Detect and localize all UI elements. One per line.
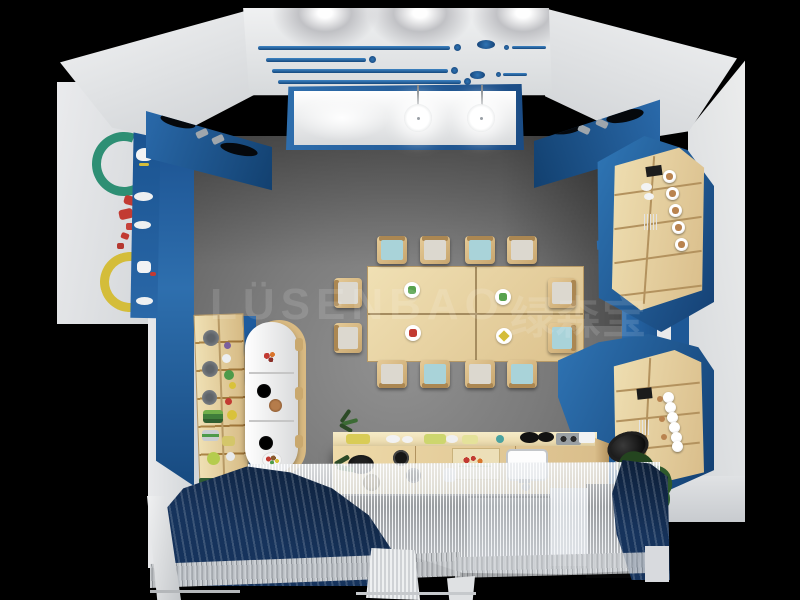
- jar-item: [224, 342, 231, 349]
- soffit-cutout: [219, 140, 258, 159]
- capsule-hinge: [295, 338, 303, 351]
- counter-plate: [402, 436, 413, 443]
- jar-item: [202, 390, 217, 405]
- shelf-accent: [150, 272, 156, 276]
- chair: [377, 236, 407, 264]
- counter-plate: [386, 435, 400, 443]
- chair: [465, 236, 495, 264]
- shelf-cone: [657, 396, 663, 402]
- chair: [420, 360, 450, 388]
- shelf-plate: [672, 221, 685, 234]
- counter-mat: [424, 434, 446, 444]
- ceiling-ellipse: [477, 40, 495, 49]
- capsule-hinge: [295, 387, 303, 400]
- shelf-dark-box: [636, 387, 652, 400]
- jar-item: [222, 436, 235, 446]
- ceiling-stripe-dot: [496, 72, 501, 77]
- pendant-light-center: [480, 117, 483, 120]
- counter-stove: [556, 433, 581, 445]
- counter-mat: [346, 434, 370, 444]
- soffit-glyph: [577, 124, 591, 135]
- shelf-plate: [663, 170, 676, 183]
- counter-teal-item: [496, 435, 504, 443]
- chair: [507, 360, 537, 388]
- shelf-plate: [134, 192, 153, 201]
- watermark-cjk: 绿森宝: [510, 282, 648, 346]
- counter-pot: [520, 432, 539, 443]
- watermark-latin: LÜSENBAO: [210, 280, 505, 330]
- curtain-tab: [447, 576, 475, 600]
- jar-item: [202, 361, 218, 377]
- capsule-knob-black: [259, 436, 273, 450]
- ceiling-stripe: [512, 46, 546, 49]
- jar-item: [207, 452, 220, 465]
- shelf-cone: [659, 416, 665, 422]
- pendant-light-center: [417, 117, 420, 120]
- jar-item: [222, 354, 231, 363]
- chair: [377, 360, 407, 388]
- jar-item: [202, 430, 219, 441]
- shelf-cone: [661, 434, 667, 440]
- capsule-decal-food: [262, 350, 278, 363]
- shelf-plate: [666, 187, 679, 200]
- ceiling-stripe-dot: [504, 45, 509, 50]
- shelf-accent: [139, 163, 149, 166]
- counter-mat: [462, 435, 478, 444]
- curtain-tab: [645, 546, 669, 582]
- ceiling-stripe: [266, 58, 366, 62]
- ceiling-stripe: [258, 46, 450, 50]
- red-wall-decor: [117, 243, 124, 249]
- shelf-bowl: [641, 183, 652, 191]
- sill-line: [150, 590, 240, 593]
- shelf-plate: [134, 221, 151, 229]
- chair: [420, 236, 450, 264]
- watermark: LÜSENBAO 绿森宝: [210, 280, 630, 332]
- shelf-plate: [672, 441, 683, 452]
- counter-plate: [446, 435, 458, 443]
- shelf-cup: [137, 261, 151, 273]
- soffit-glyph: [195, 128, 209, 139]
- lightbox-glow: [294, 95, 390, 141]
- counter-pot: [538, 432, 554, 442]
- capsule-decal-toppings: [265, 455, 279, 465]
- jar-item: [224, 370, 234, 380]
- capsule-hinge: [295, 435, 303, 448]
- jar-item: [203, 410, 223, 423]
- capsule-knob-brown: [269, 399, 282, 412]
- chair: [507, 236, 537, 264]
- chair: [465, 360, 495, 388]
- jar-item: [226, 452, 235, 461]
- ceiling-stripe-dot: [369, 56, 376, 63]
- capsule-knob-black: [257, 384, 271, 398]
- ceiling-stripe-dot: [464, 78, 471, 85]
- lightbox-panel: [294, 91, 516, 145]
- ceiling-stripe: [278, 80, 461, 84]
- jar-item: [227, 410, 237, 420]
- shelf-plate: [136, 297, 153, 305]
- counter-box: [579, 432, 595, 443]
- ceiling-stripe: [503, 73, 527, 76]
- shelf-plate: [675, 238, 688, 251]
- shelf-bowl: [644, 193, 654, 200]
- jar-item: [203, 330, 219, 346]
- left-wall-blue: [156, 126, 194, 486]
- ceiling-stripe-dot: [451, 67, 458, 74]
- ceiling-ellipse: [470, 71, 485, 79]
- ceiling-stripe-dot: [454, 44, 461, 51]
- jar-item: [229, 382, 236, 389]
- sill-line: [356, 592, 476, 595]
- shelf-plate: [669, 204, 682, 217]
- ceiling-stripe: [272, 69, 448, 73]
- render-canvas: LÜSENBAO 绿森宝: [0, 0, 800, 600]
- jar-item: [225, 398, 232, 405]
- fork-rack: [644, 214, 657, 230]
